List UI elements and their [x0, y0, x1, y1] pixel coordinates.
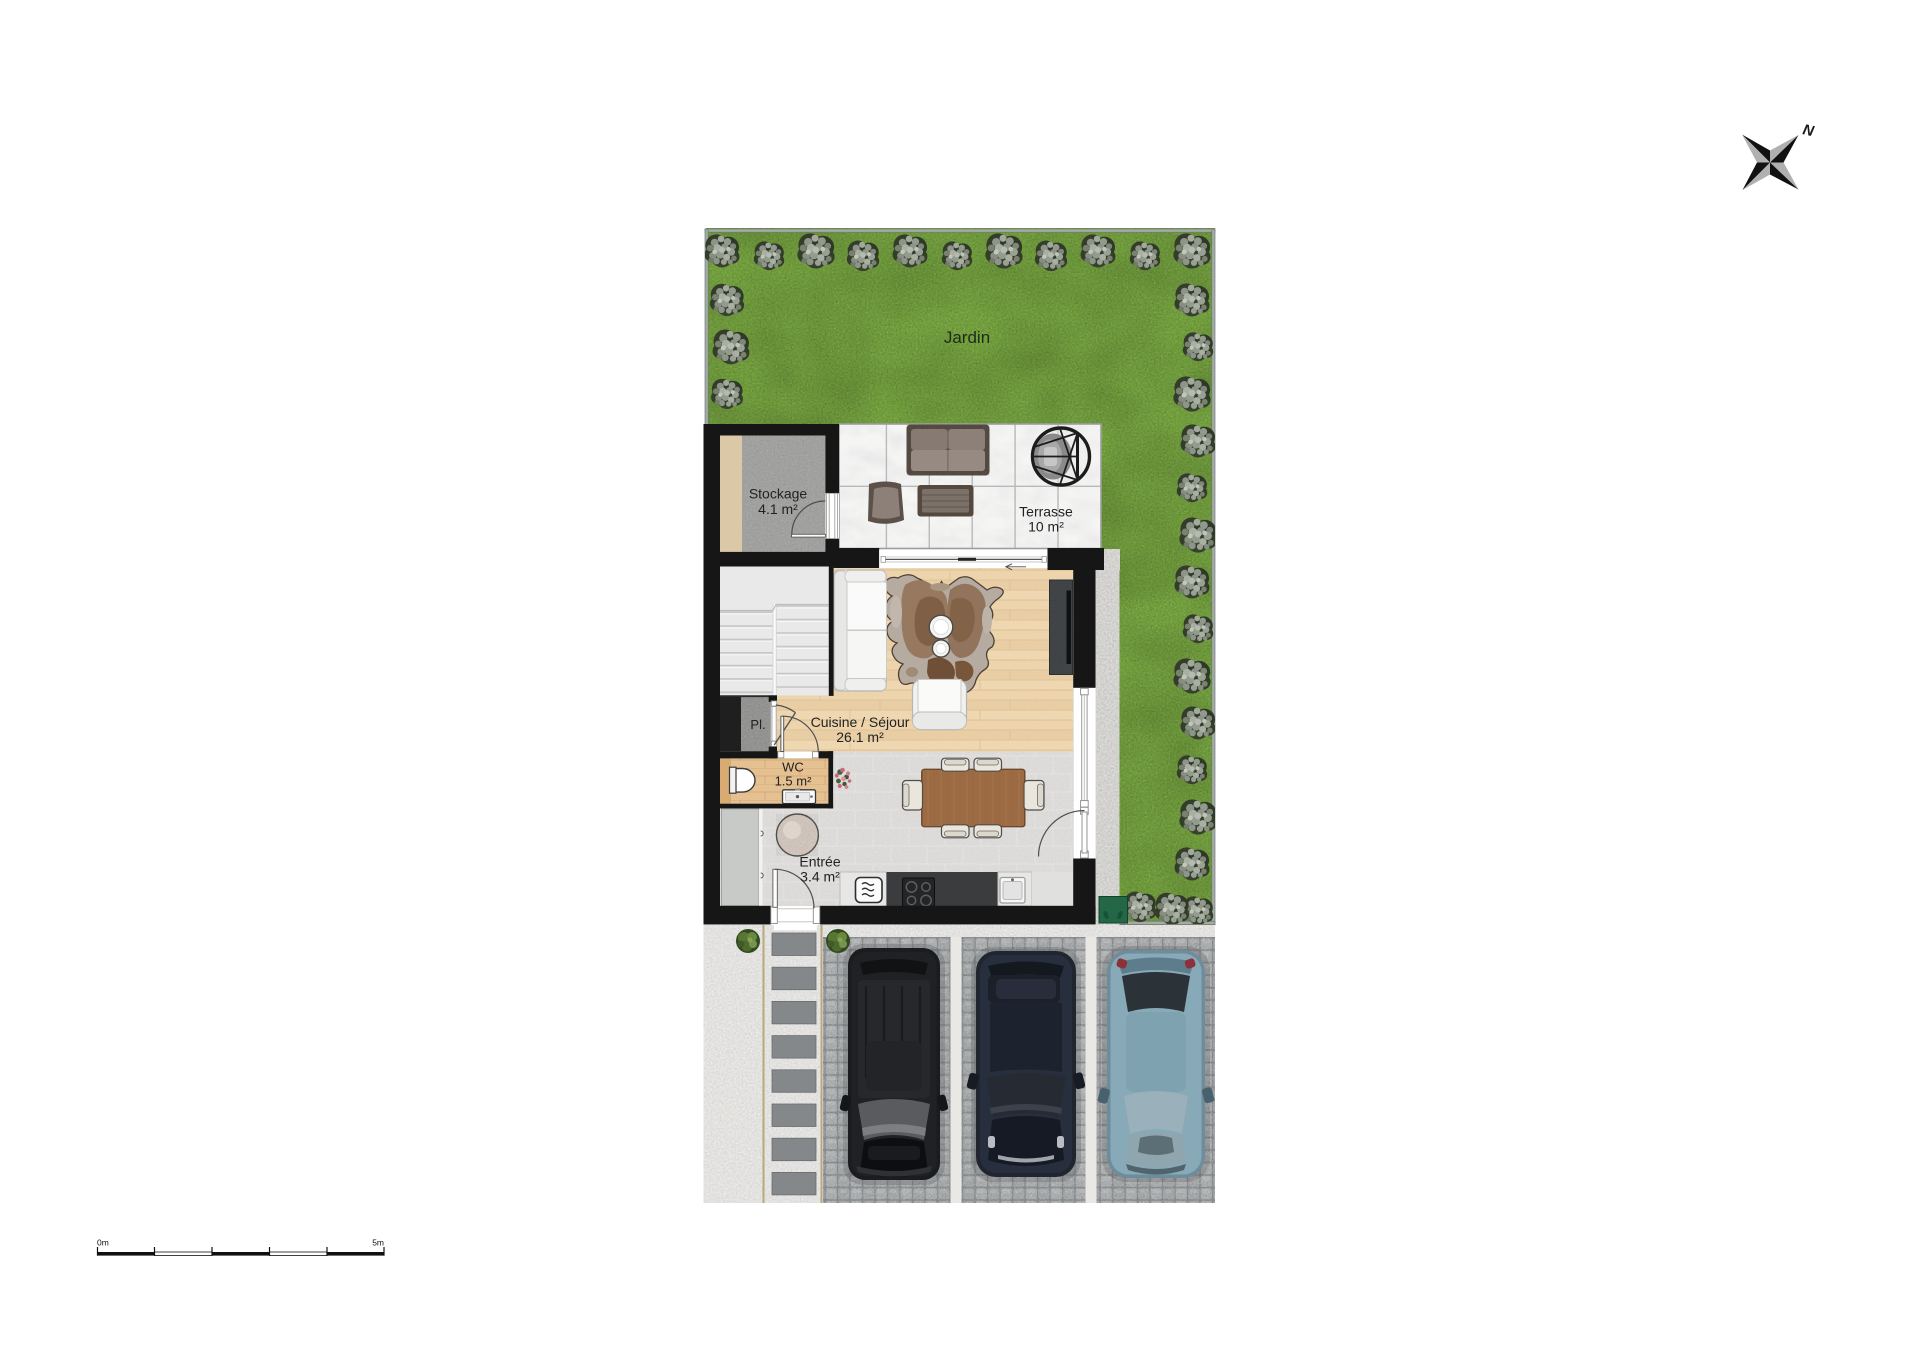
svg-text:1.5 m²: 1.5 m² [775, 774, 813, 789]
svg-text:Entrée: Entrée [799, 854, 840, 870]
svg-text:Stockage: Stockage [749, 486, 808, 502]
svg-text:Jardin: Jardin [944, 328, 990, 347]
svg-text:10 m²: 10 m² [1028, 519, 1064, 535]
svg-text:Terrasse: Terrasse [1019, 504, 1073, 520]
svg-text:4.1 m²: 4.1 m² [758, 501, 798, 517]
svg-text:Pl.: Pl. [750, 717, 765, 732]
svg-text:26.1 m²: 26.1 m² [836, 729, 884, 745]
svg-text:5m: 5m [372, 1238, 384, 1248]
svg-text:3.4 m²: 3.4 m² [800, 869, 840, 885]
svg-text:0m: 0m [97, 1238, 109, 1248]
svg-text:WC: WC [782, 760, 804, 775]
svg-text:Cuisine / Séjour: Cuisine / Séjour [811, 714, 910, 730]
